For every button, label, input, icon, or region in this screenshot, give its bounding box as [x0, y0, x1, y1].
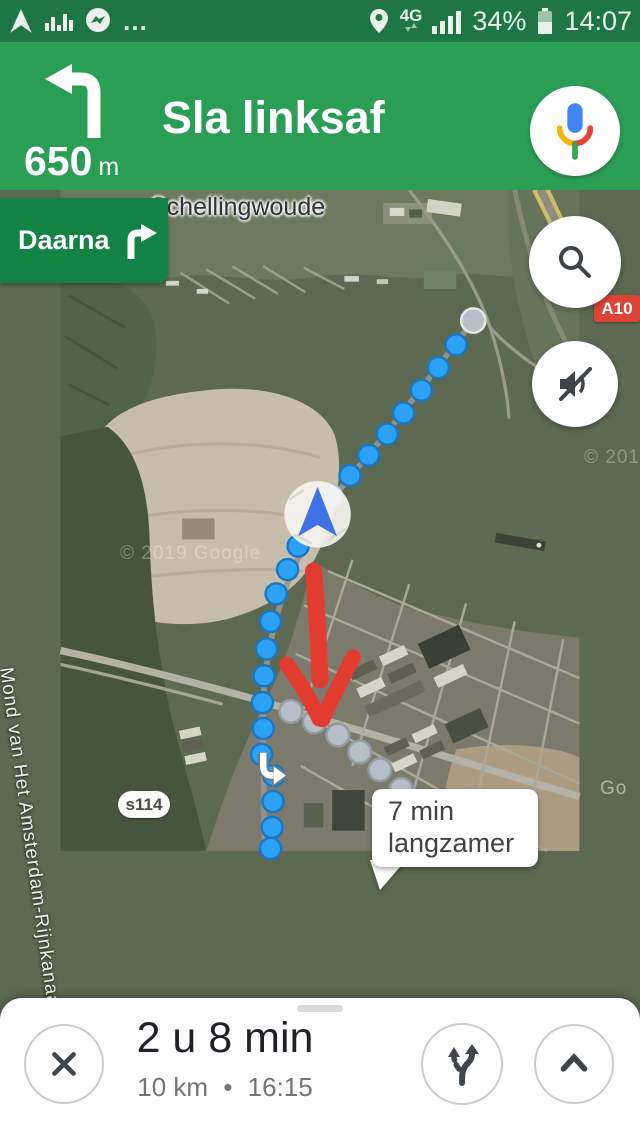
route-options-icon	[440, 1042, 484, 1086]
map-canvas[interactable]	[0, 190, 640, 1005]
map-imagery	[0, 190, 640, 1005]
next-maneuver-label: Daarna	[18, 225, 110, 256]
map-place-label: Schellingwoude	[150, 193, 325, 222]
google-watermark-edge: Go	[600, 778, 627, 800]
navigation-banner: 650m Sla linksaf	[0, 42, 640, 190]
notification-overflow: …	[122, 16, 150, 26]
battery-percent: 34%	[472, 6, 526, 37]
trip-summary: 2 u 8 min 10 km • 16:15	[105, 1014, 345, 1103]
battery-icon	[536, 6, 554, 36]
maneuver-instruction: Sla linksaf	[162, 92, 385, 144]
network-type: 4G	[400, 10, 423, 32]
trip-duration: 2 u 8 min	[105, 1014, 345, 1063]
turn-left-icon	[40, 62, 106, 138]
status-left: …	[8, 7, 150, 35]
turn-right-icon	[120, 221, 160, 261]
trip-separator: •	[223, 1072, 232, 1102]
data-arrows-icon	[404, 23, 418, 32]
clock: 14:07	[564, 6, 632, 37]
gps-arrow-icon	[8, 7, 34, 35]
mute-button[interactable]	[532, 341, 618, 427]
traffic-delay-callout[interactable]: 7 min langzamer	[372, 789, 538, 867]
google-watermark: © 2019 Google	[120, 543, 261, 565]
close-icon	[45, 1045, 83, 1083]
voice-button[interactable]	[530, 86, 620, 176]
google-mic-icon	[552, 100, 598, 162]
distance-value: 650	[24, 138, 92, 184]
end-navigation-button[interactable]	[24, 1024, 104, 1104]
road-badge-s114: s114	[118, 791, 170, 818]
callout-delay: 7 min	[388, 795, 538, 827]
alternate-routes-button[interactable]	[421, 1023, 503, 1105]
callout-slower: langzamer	[388, 827, 538, 859]
status-bar: … 4G 34% 14:07	[0, 0, 640, 42]
search-icon	[553, 240, 597, 284]
chevron-up-icon	[553, 1043, 595, 1085]
next-maneuver-chip[interactable]: Daarna	[0, 198, 168, 283]
signal-strength-icon	[432, 8, 462, 34]
expand-button[interactable]	[534, 1024, 614, 1104]
trip-eta: 16:15	[248, 1072, 313, 1102]
trip-bottom-sheet: 2 u 8 min 10 km • 16:15	[0, 998, 640, 1137]
distance-unit: m	[98, 153, 119, 181]
sound-off-icon	[553, 362, 597, 406]
location-pin-icon	[368, 7, 390, 35]
trip-details: 10 km • 16:15	[105, 1072, 345, 1103]
maneuver-distance: 650m	[24, 138, 119, 185]
google-watermark-right: © 201	[584, 447, 640, 469]
current-location-puck	[284, 481, 350, 547]
data-usage-icon	[44, 9, 74, 33]
search-button[interactable]	[529, 216, 621, 308]
navigation-screen: Schellingwoude Mond van Het Amsterdam-Ri…	[0, 0, 640, 1137]
drag-handle[interactable]	[297, 1005, 343, 1012]
status-right: 4G 34% 14:07	[368, 6, 632, 37]
trip-distance: 10 km	[137, 1072, 208, 1102]
messenger-icon	[84, 7, 112, 35]
